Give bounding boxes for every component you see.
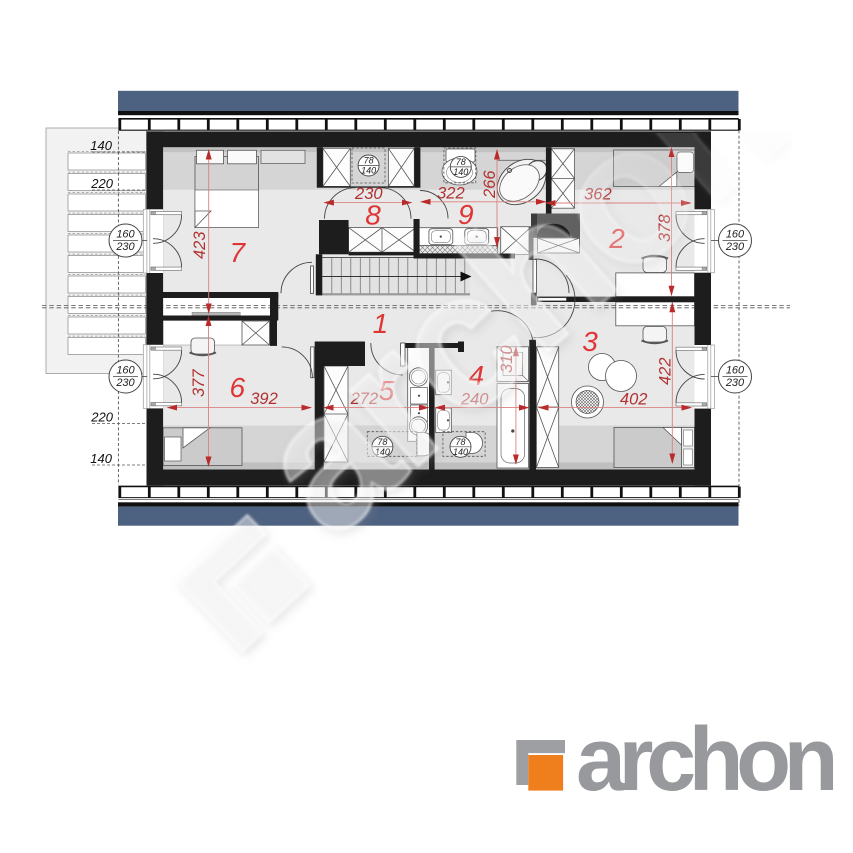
- svg-text:140: 140: [453, 167, 468, 177]
- svg-text:160: 160: [116, 229, 135, 241]
- svg-text:422: 422: [657, 357, 675, 385]
- svg-text:230: 230: [115, 241, 135, 253]
- svg-text:377: 377: [190, 369, 208, 397]
- svg-text:160: 160: [116, 365, 135, 377]
- svg-text:140: 140: [361, 166, 376, 176]
- svg-text:230: 230: [115, 377, 135, 389]
- svg-text:160: 160: [726, 365, 745, 377]
- svg-text:220: 220: [90, 410, 113, 425]
- svg-text:78: 78: [364, 156, 374, 166]
- svg-text:402: 402: [620, 391, 648, 409]
- svg-text:78: 78: [456, 157, 466, 167]
- svg-text:140: 140: [90, 451, 112, 466]
- svg-text:archon: archon: [576, 710, 834, 810]
- svg-text:140: 140: [90, 138, 112, 153]
- svg-text:220: 220: [90, 176, 113, 191]
- svg-text:423: 423: [191, 231, 209, 259]
- svg-text:230: 230: [725, 377, 745, 389]
- svg-text:7: 7: [230, 237, 247, 268]
- svg-text:8: 8: [365, 200, 381, 231]
